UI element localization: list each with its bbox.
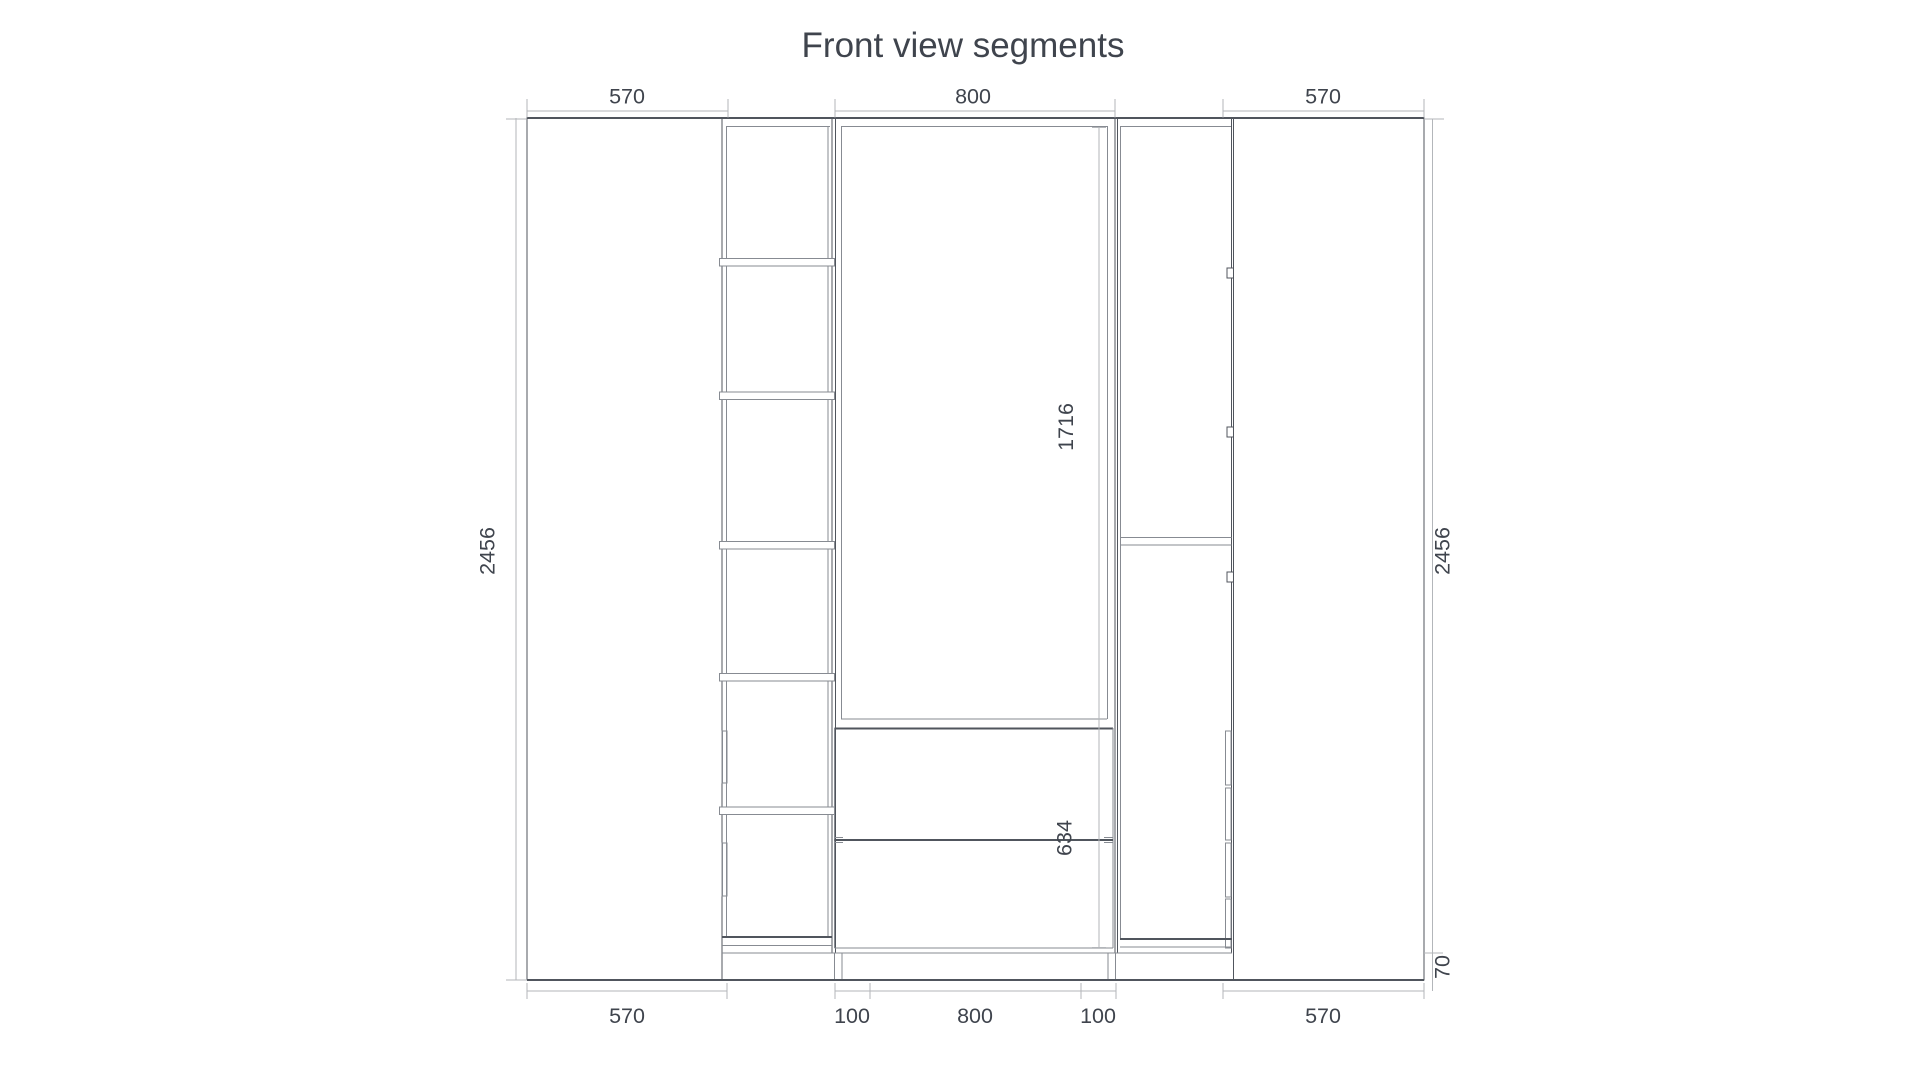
left-door-panel [527,118,722,980]
shelf-1 [720,259,835,267]
cad-drawing: Front view segments [0,0,1920,1080]
dim-label-height-left: 2456 [476,527,500,575]
shelf-column-handle-upper [722,731,726,783]
hinge-icon-middle [1227,427,1234,437]
door-column-handle-4 [1225,899,1231,948]
shelf-2 [720,392,835,400]
cabinet-structure [527,118,1424,980]
dim-label-bottom-left: 570 [609,1004,645,1028]
dim-label-height-right: 2456 [1431,527,1455,575]
dim-label-top-left: 570 [609,85,645,109]
dim-label-bottom-middle: 800 [957,1004,993,1028]
dim-label-bottom-right: 570 [1305,1004,1341,1028]
door-column-handle-2 [1225,788,1231,840]
dim-label-opening-height: 1716 [1054,403,1078,451]
dim-label-top-right: 570 [1305,85,1341,109]
dim-label-plinth-height: 70 [1431,955,1455,979]
shelf-4 [720,674,835,682]
door-column-handle-3 [1225,843,1231,897]
drawing-title: Front view segments [802,26,1125,65]
hinge-icon-top [1227,268,1234,278]
right-door-panel [1234,118,1425,980]
hinge-icon-bottom [1227,572,1234,582]
dim-label-top-middle: 800 [955,85,991,109]
shelf-column-handle-lower [722,843,726,896]
dim-label-bottom-mid-right: 100 [1080,1004,1116,1028]
dim-label-drawer-height: 634 [1053,820,1077,856]
door-column-handle-1 [1225,731,1231,785]
dim-label-bottom-mid-left: 100 [834,1004,870,1028]
front-view-drawing-canvas: Front view segments [0,0,1920,1080]
shelf-5 [720,807,835,815]
shelf-3 [720,542,835,550]
